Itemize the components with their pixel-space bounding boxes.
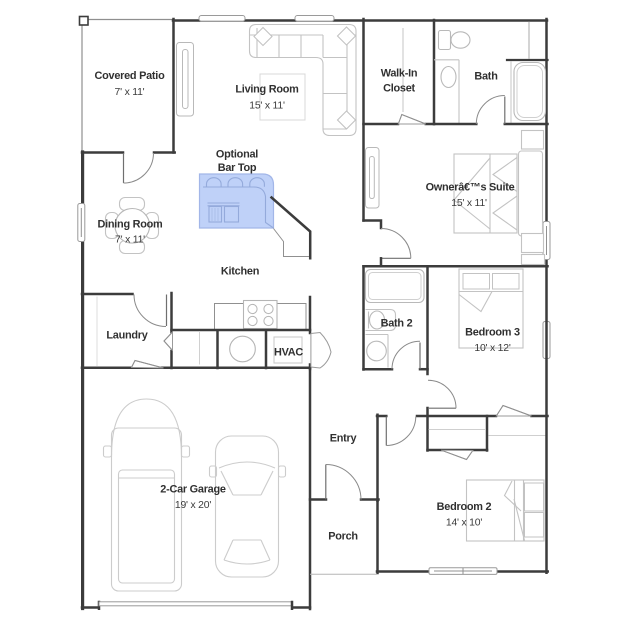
svg-text:2-Car Garage: 2-Car Garage — [160, 484, 226, 496]
svg-text:Walk-In: Walk-In — [381, 68, 418, 80]
svg-text:Living Room: Living Room — [235, 84, 299, 96]
svg-text:HVAC: HVAC — [274, 347, 303, 359]
svg-text:Bedroom 3: Bedroom 3 — [465, 327, 520, 339]
svg-text:10' x 12': 10' x 12' — [474, 343, 510, 354]
svg-text:15' x 11': 15' x 11' — [249, 101, 285, 112]
svg-text:Bedroom 2: Bedroom 2 — [437, 501, 492, 513]
svg-text:Laundry: Laundry — [106, 330, 147, 342]
svg-text:7' x 11': 7' x 11' — [115, 87, 145, 98]
svg-text:Bath: Bath — [474, 71, 497, 83]
svg-text:Covered Patio: Covered Patio — [95, 70, 166, 82]
svg-text:Kitchen: Kitchen — [221, 266, 259, 278]
svg-text:Closet: Closet — [383, 83, 415, 95]
svg-text:Dining Room: Dining Room — [97, 219, 163, 231]
svg-text:Bath 2: Bath 2 — [381, 318, 413, 330]
svg-text:19' x 20': 19' x 20' — [175, 500, 211, 511]
svg-text:Entry: Entry — [330, 433, 357, 445]
svg-text:Ownerâ€™s Suite: Ownerâ€™s Suite — [426, 182, 515, 194]
svg-text:15' x 11': 15' x 11' — [451, 198, 487, 209]
svg-text:Optional: Optional — [216, 149, 258, 161]
svg-text:14' x 10': 14' x 10' — [446, 518, 482, 529]
svg-text:Porch: Porch — [328, 531, 358, 543]
svg-text:Bar Top: Bar Top — [218, 162, 257, 174]
svg-text:7' x 11': 7' x 11' — [115, 235, 145, 246]
